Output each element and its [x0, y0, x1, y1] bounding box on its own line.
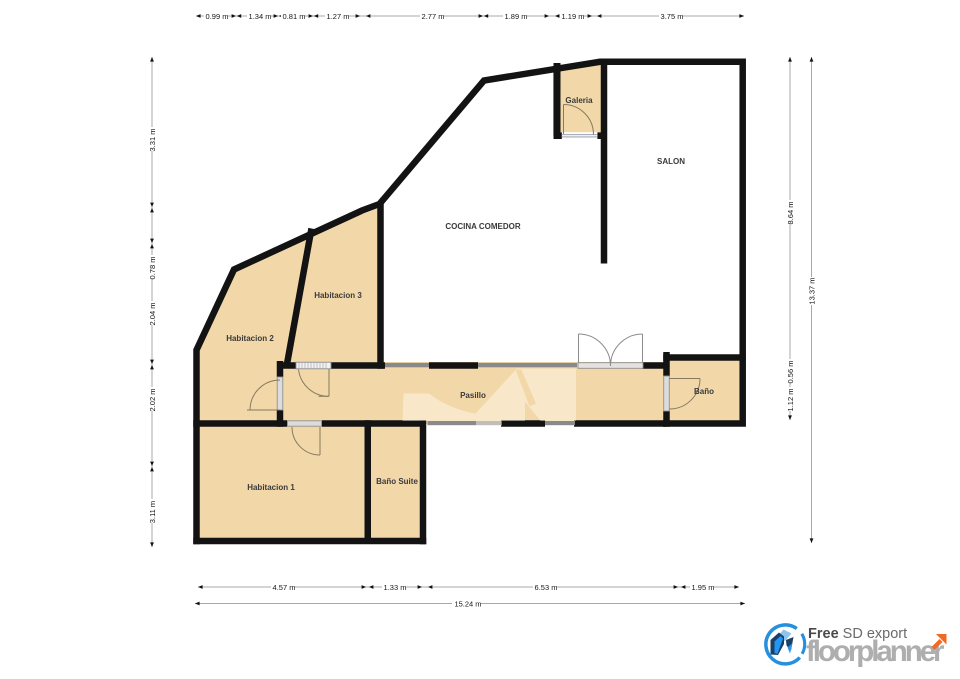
- svg-text:Pasillo: Pasillo: [460, 391, 486, 400]
- svg-text:0.99 m: 0.99 m: [206, 12, 229, 21]
- svg-text:0.81 m: 0.81 m: [283, 12, 306, 21]
- svg-text:1.95 m: 1.95 m: [692, 583, 715, 592]
- svg-text:8.64 m: 8.64 m: [786, 202, 795, 225]
- svg-text:1.12 m: 1.12 m: [786, 389, 795, 412]
- svg-text:Habitacion 2: Habitacion 2: [226, 334, 274, 343]
- svg-text:Free SD export: Free SD export: [808, 626, 907, 642]
- svg-text:1.33 m: 1.33 m: [384, 583, 407, 592]
- svg-text:3.31 m: 3.31 m: [148, 129, 157, 152]
- svg-text:15.24 m: 15.24 m: [454, 600, 481, 609]
- svg-text:1.27 m: 1.27 m: [327, 12, 350, 21]
- svg-text:3.11 m: 3.11 m: [148, 501, 157, 523]
- svg-text:Galeria: Galeria: [565, 96, 593, 105]
- svg-text:0.78 m: 0.78 m: [148, 257, 157, 280]
- svg-text:3.75 m: 3.75 m: [661, 12, 684, 21]
- svg-text:2.04 m: 2.04 m: [148, 303, 157, 326]
- svg-text:6.53 m: 6.53 m: [535, 583, 558, 592]
- svg-text:1.19 m: 1.19 m: [562, 12, 585, 21]
- svg-text:4.57 m: 4.57 m: [273, 583, 296, 592]
- svg-text:COCINA COMEDOR: COCINA COMEDOR: [445, 222, 520, 231]
- svg-text:SALON: SALON: [657, 157, 685, 166]
- svg-text:0.56 m: 0.56 m: [786, 361, 795, 384]
- svg-text:Baño: Baño: [694, 387, 714, 396]
- svg-text:Habitacion 1: Habitacion 1: [247, 483, 295, 492]
- svg-text:13.37 m: 13.37 m: [808, 277, 817, 304]
- svg-text:1.34 m: 1.34 m: [249, 12, 272, 21]
- svg-text:Baño Suite: Baño Suite: [376, 477, 418, 486]
- svg-text:2.02 m: 2.02 m: [148, 389, 157, 412]
- svg-text:2.77 m: 2.77 m: [422, 12, 445, 21]
- svg-text:1.89 m: 1.89 m: [505, 12, 528, 21]
- svg-text:Habitacion 3: Habitacion 3: [314, 291, 362, 300]
